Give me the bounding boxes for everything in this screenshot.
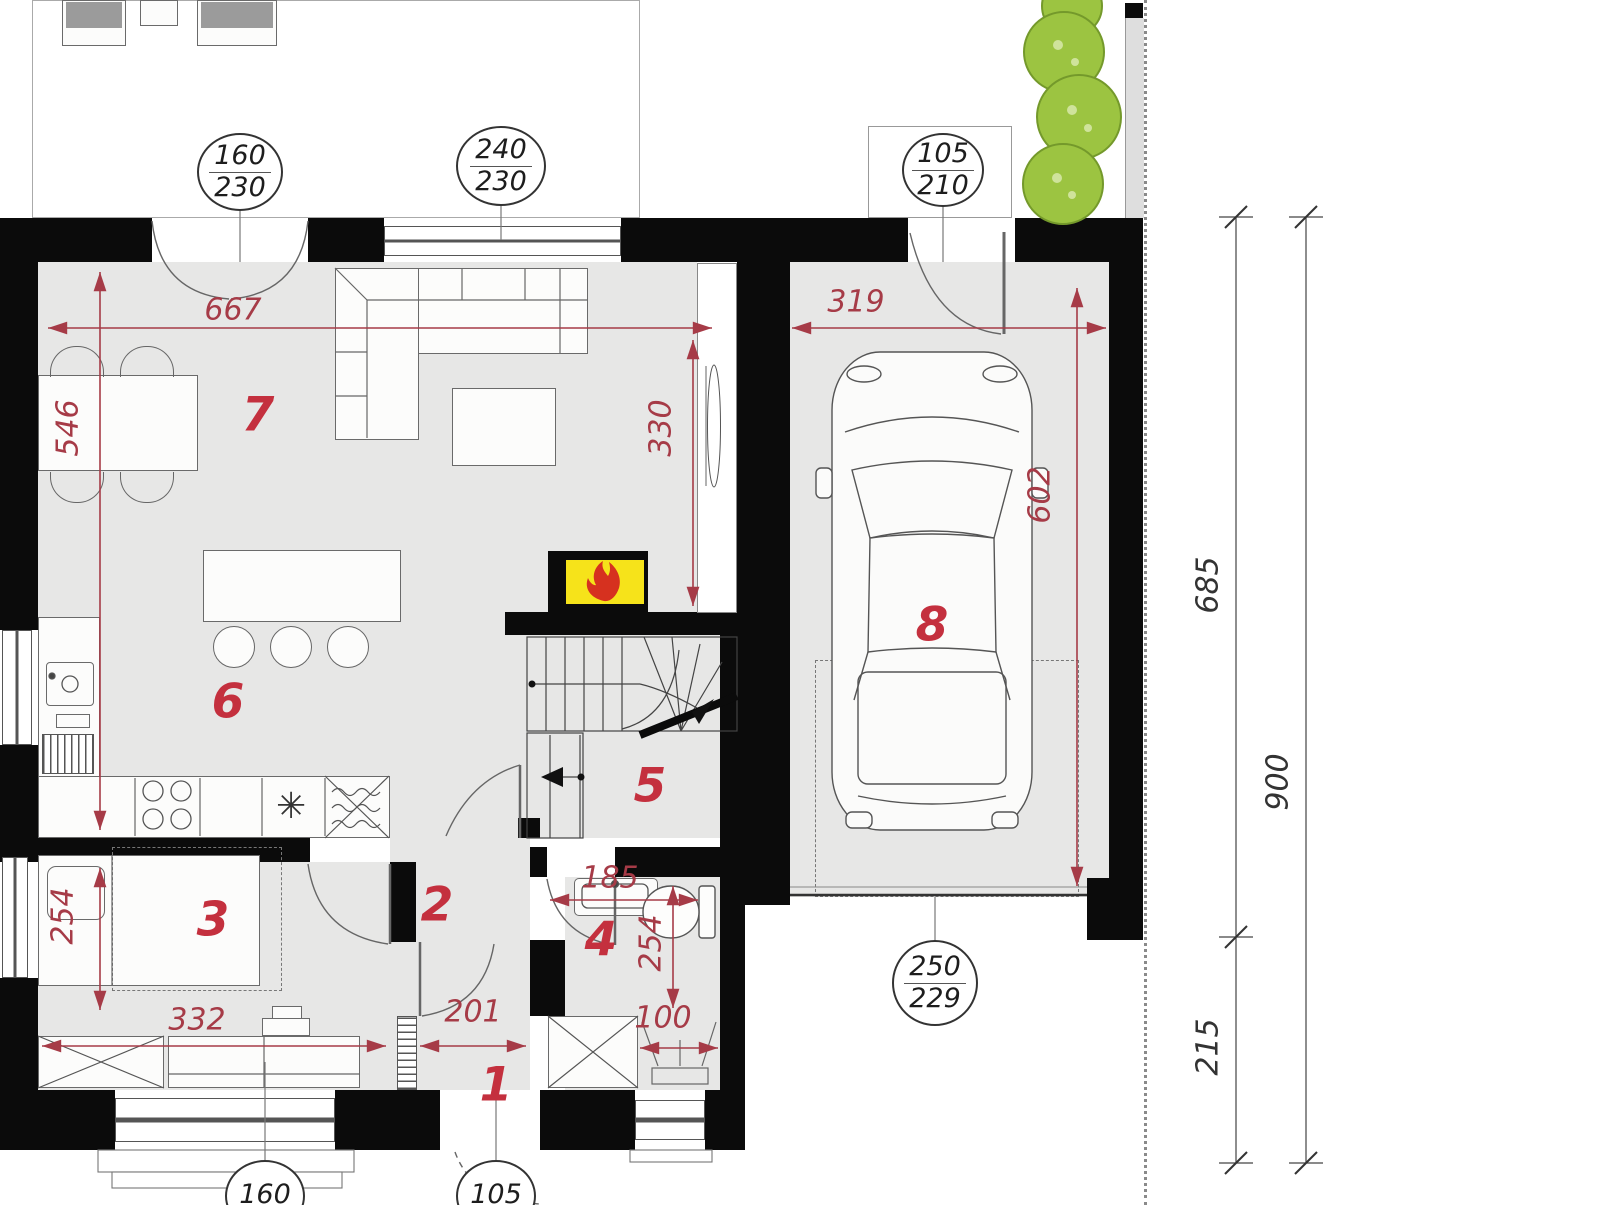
party-wall-dotted-line <box>1144 0 1147 1205</box>
window-sill <box>98 1150 712 1188</box>
tag-living-window: 240 230 <box>456 126 546 206</box>
wall-garage-corner <box>1087 878 1143 940</box>
lounger-cushion <box>66 2 122 28</box>
wall-top <box>1015 218 1143 262</box>
dim-bath-width: 185 <box>581 861 638 896</box>
kitchen-sink-icon: ✳ <box>276 786 306 827</box>
dim-bedroom-depth: 254 <box>46 887 81 944</box>
exterior-dimension-line <box>1219 217 1323 1163</box>
tv-partition <box>697 263 737 613</box>
wall-left <box>0 218 38 630</box>
tv-on-dresser <box>272 1006 302 1019</box>
hall-radiator <box>397 1016 417 1090</box>
dim-right-upper: 685 <box>1191 556 1226 613</box>
room-label-stair-hall: 5 <box>634 759 667 814</box>
dim-bedroom-width: 332 <box>168 1003 225 1038</box>
room-label-bathroom: 4 <box>585 913 618 968</box>
sofa-section <box>335 268 419 440</box>
room-label-bedroom: 3 <box>197 893 230 948</box>
dimension-tick <box>1225 206 1317 1174</box>
dim-right-total: 900 <box>1261 753 1296 810</box>
living-window <box>384 226 621 256</box>
wall-stair-stub <box>518 818 540 838</box>
wall-bottom <box>335 1090 440 1150</box>
bedroom-window <box>115 1098 335 1142</box>
wall-entry-side <box>530 940 565 1016</box>
kitchen-island <box>203 550 401 622</box>
dim-hall-width: 201 <box>444 995 501 1030</box>
wall-stair-band <box>505 612 737 635</box>
wall-bath-right <box>720 635 745 1150</box>
wall-garage-right <box>1109 262 1143 905</box>
tag-entry-door: 105 <box>456 1160 536 1205</box>
dim-living-depth: 546 <box>51 399 86 456</box>
floor-plan: ✳ <box>0 0 1606 1205</box>
fireplace <box>566 560 644 604</box>
terrace-table <box>140 0 178 26</box>
tag-garage-side-door: 105 210 <box>902 133 984 207</box>
wall-hall-stub <box>390 862 416 942</box>
kitchen-radiator <box>42 734 94 774</box>
room-label-kitchen: 6 <box>212 675 245 730</box>
kitchen-sink <box>46 662 94 706</box>
dim-tv-wall: 330 <box>644 399 679 456</box>
lounger-cushion <box>201 2 273 28</box>
coffee-table <box>452 388 556 466</box>
kitchen-counter-bottom <box>38 776 390 838</box>
bar-stool <box>213 626 255 668</box>
dim-garage-width: 319 <box>827 285 884 320</box>
tag-garage-gate: 250 229 <box>892 940 978 1026</box>
party-wall-cap <box>1125 3 1143 18</box>
dim-living-width: 667 <box>204 293 261 328</box>
dim-shower-width: 100 <box>634 1001 691 1036</box>
dim-garage-depth: 602 <box>1023 466 1058 523</box>
wall-bottom <box>540 1090 635 1150</box>
tag-bedroom-window: 160 <box>225 1160 305 1205</box>
wall-bottom <box>0 1090 115 1150</box>
dresser <box>168 1036 360 1088</box>
bar-stool <box>270 626 312 668</box>
stair-hall-floor <box>505 635 720 838</box>
bedroom-side-window <box>2 857 28 978</box>
parking-outline <box>815 660 1079 897</box>
kitchen-tray <box>56 714 90 728</box>
dim-right-lower: 215 <box>1191 1018 1226 1075</box>
room-label-entry: 1 <box>480 1058 513 1113</box>
entry-wardrobe <box>548 1016 638 1088</box>
tv-on-dresser <box>262 1018 310 1036</box>
kitchen-side-window <box>2 630 32 745</box>
wall-bath-top <box>530 847 547 877</box>
bush-icon <box>1023 0 1121 224</box>
dim-bath-depth: 254 <box>634 914 669 971</box>
wardrobe <box>38 1036 164 1088</box>
room-label-living: 7 <box>242 388 275 443</box>
party-wall-strip <box>1125 18 1144 218</box>
room-label-garage: 8 <box>916 598 949 653</box>
bar-stool <box>327 626 369 668</box>
wall-top <box>308 218 384 262</box>
room-label-hall: 2 <box>421 878 454 933</box>
tag-terrace-door: 160 230 <box>197 133 283 211</box>
bathroom-window <box>635 1100 705 1140</box>
